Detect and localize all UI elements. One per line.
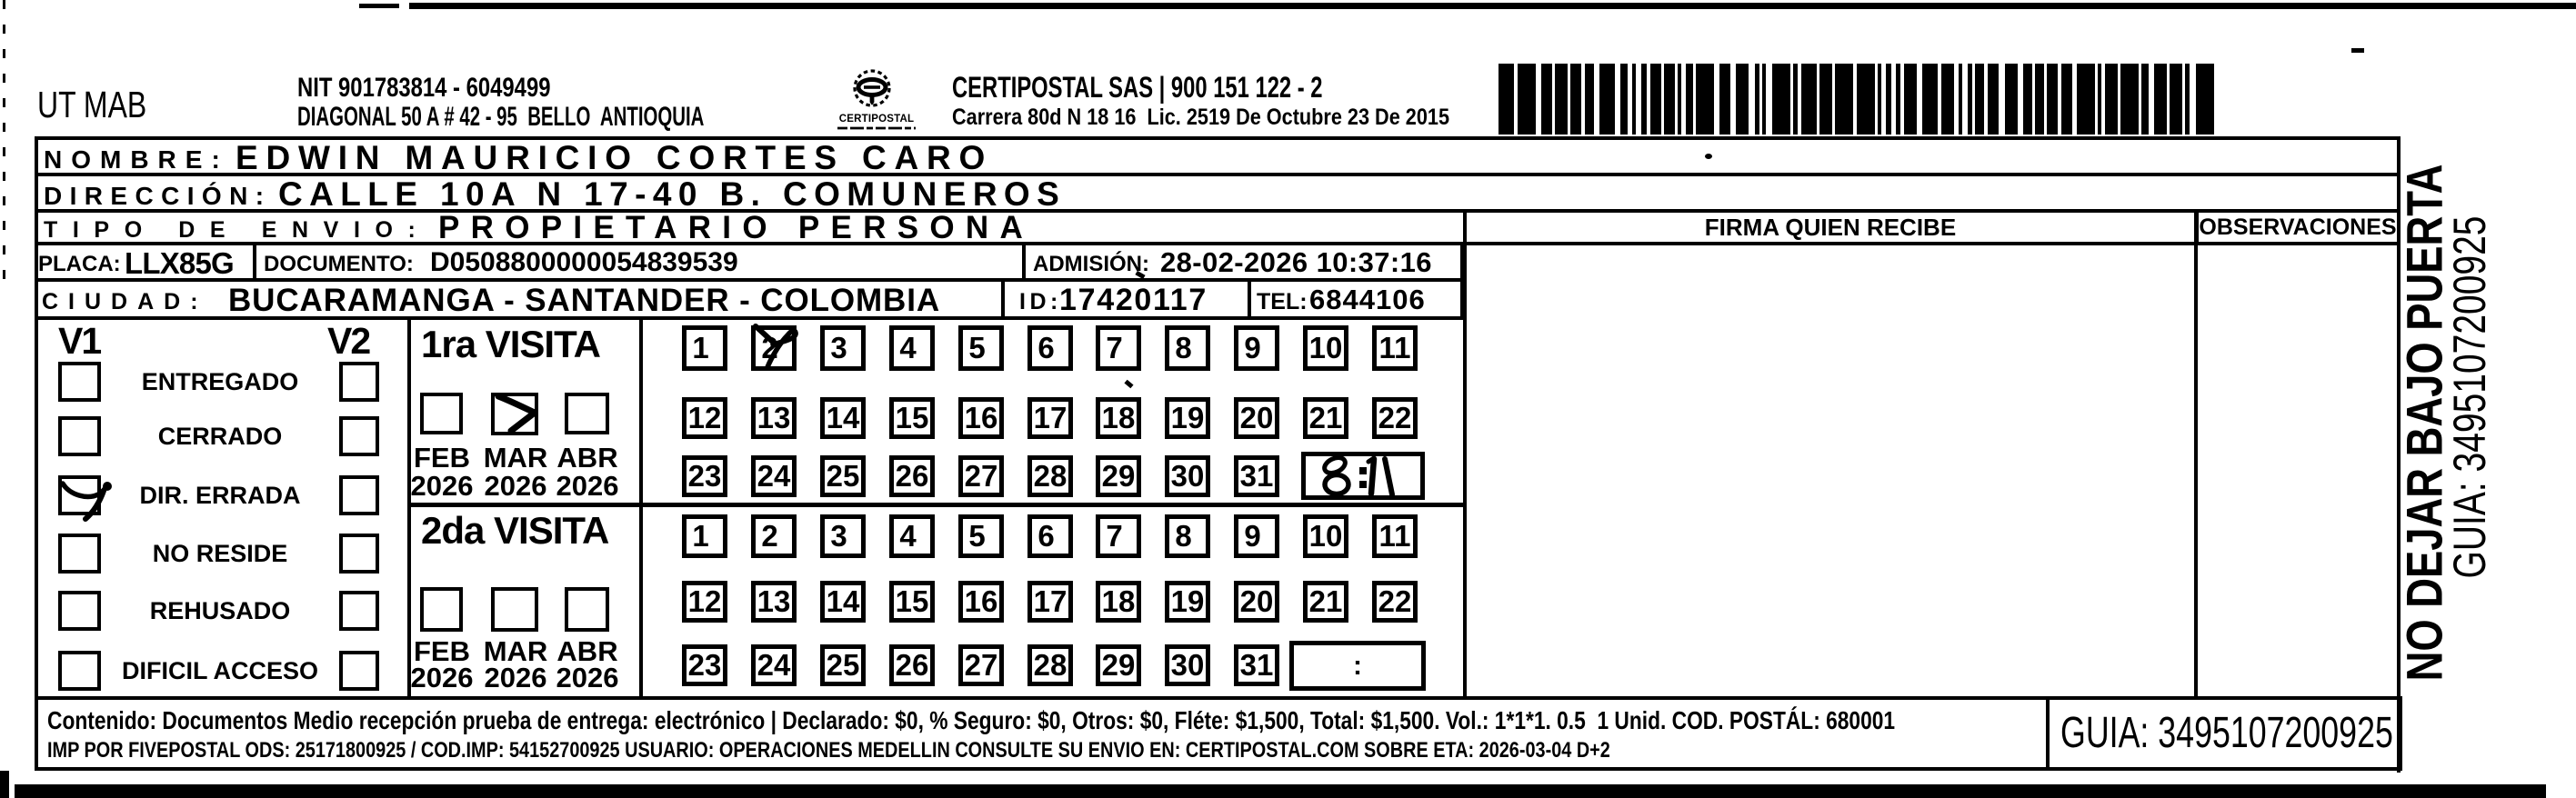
svg-text:CERTIPOSTAL: CERTIPOSTAL xyxy=(839,114,915,125)
